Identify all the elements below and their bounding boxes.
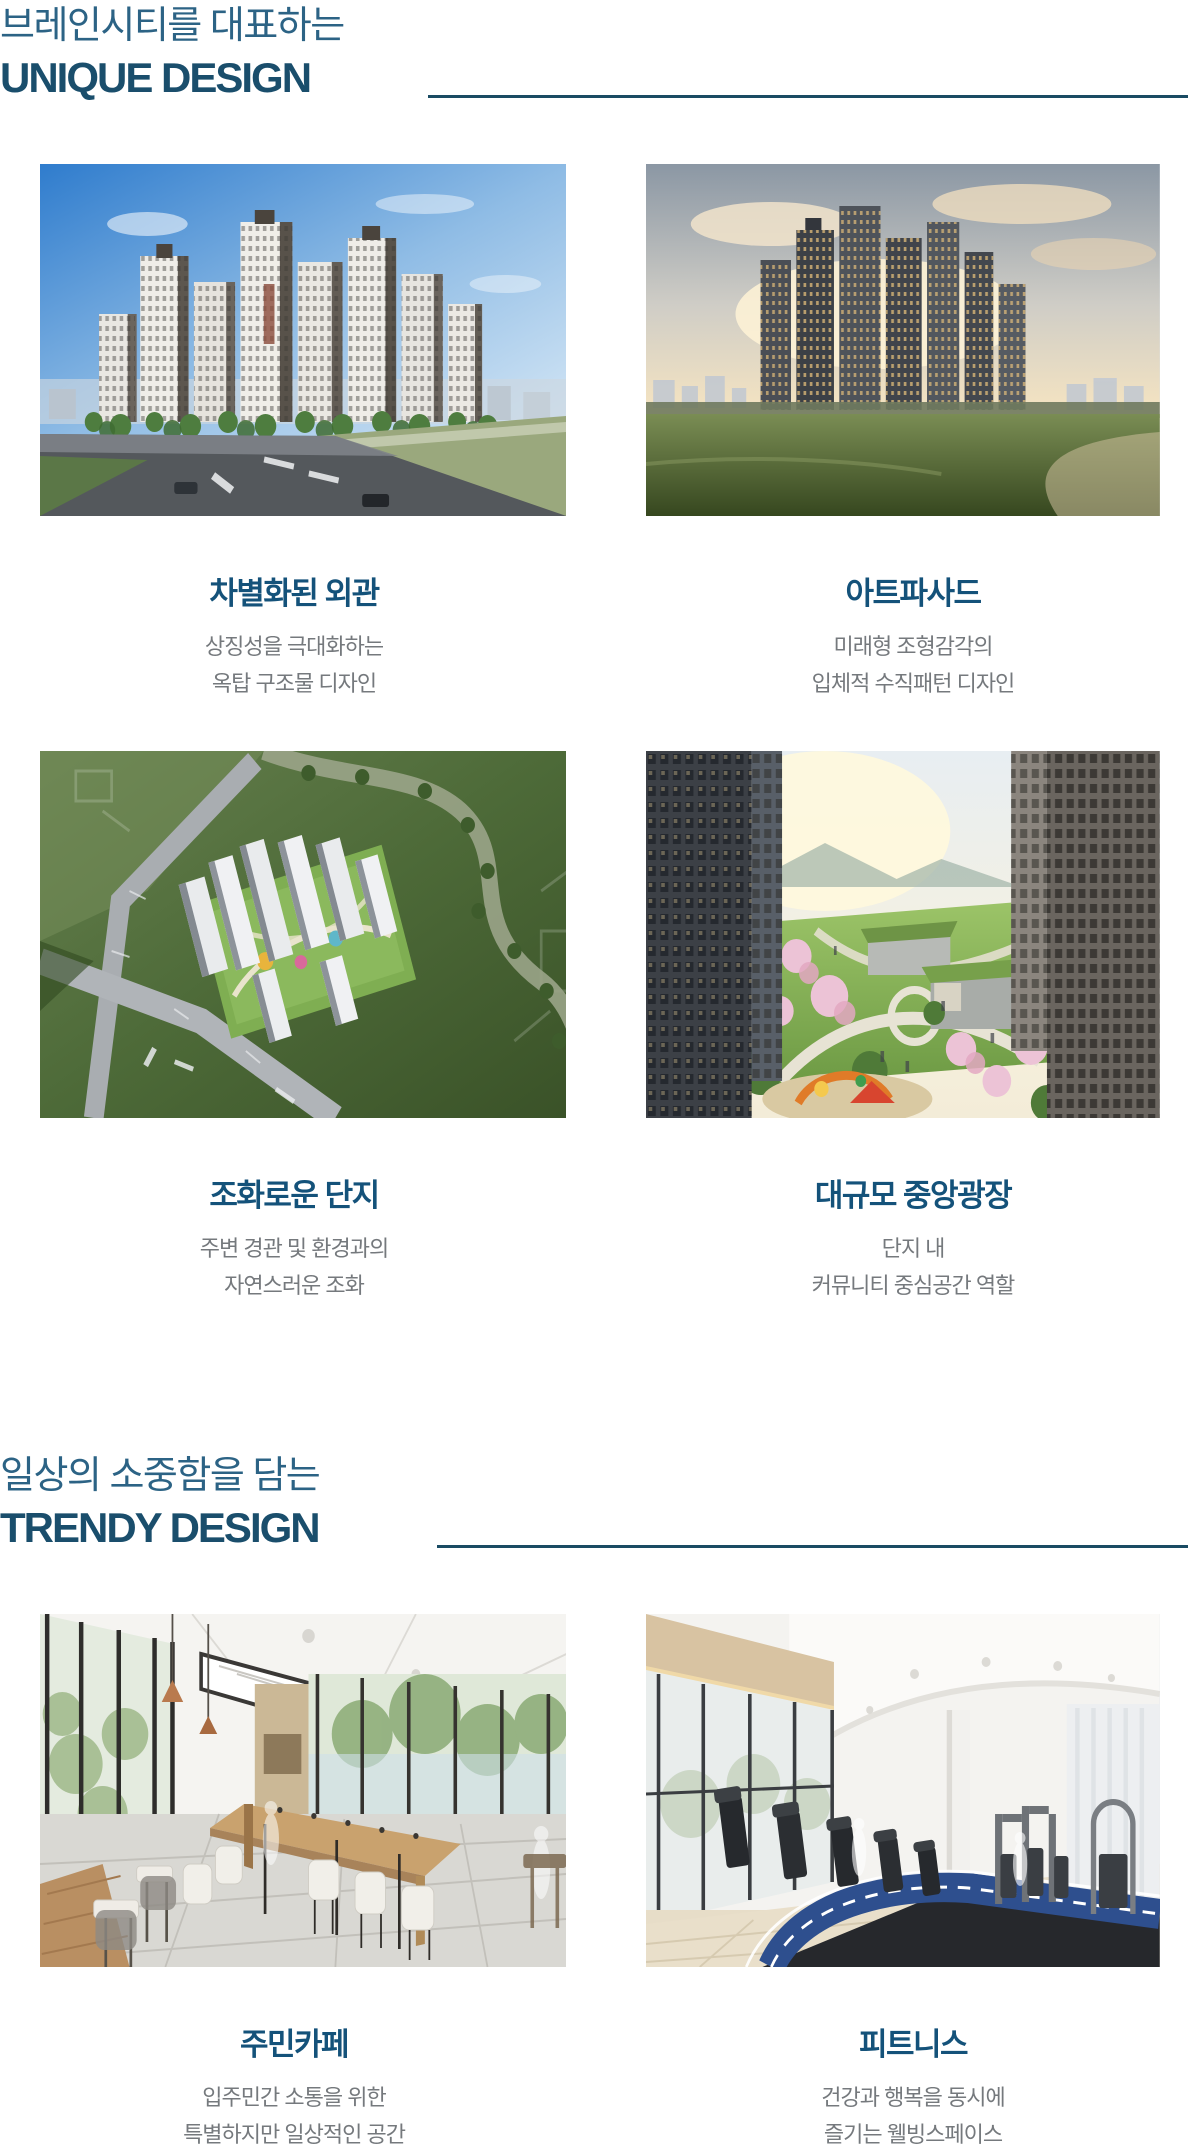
card-desc-line: 자연스러운 조화 bbox=[0, 1267, 588, 1304]
card-desc-line: 미래형 조형감각의 bbox=[626, 628, 1200, 665]
photo-fitness-center bbox=[646, 1614, 1160, 1967]
image-row-3 bbox=[0, 1598, 1200, 1983]
card-desc-line: 상징성을 극대화하는 bbox=[0, 628, 588, 665]
card-title: 피트니스 bbox=[626, 2027, 1200, 2063]
card-title: 주민카페 bbox=[0, 2027, 588, 2063]
card-description: 입주민간 소통을 위한 특별하지만 일상적인 공간 bbox=[0, 2079, 588, 2153]
card-desc-line: 주변 경관 및 환경과의 bbox=[0, 1230, 588, 1267]
card-description: 미래형 조형감각의 입체적 수직패턴 디자인 bbox=[626, 628, 1200, 702]
card-description: 건강과 행복을 동시에 즐기는 웰빙스페이스 bbox=[626, 2079, 1200, 2153]
section-title: TRENDY DESIGN bbox=[0, 1507, 319, 1549]
card-description: 상징성을 극대화하는 옥탑 구조물 디자인 bbox=[0, 628, 588, 702]
card-caption: 차별화된 외관 상징성을 극대화하는 옥탑 구조물 디자인 bbox=[0, 532, 588, 702]
section-divider-rule bbox=[437, 1545, 1188, 1548]
card-desc-line: 특별하지만 일상적인 공간 bbox=[0, 2116, 588, 2153]
section-header: 일상의 소중함을 담는 TRENDY DESIGN bbox=[0, 1452, 1200, 1549]
residents-cafe-illustration bbox=[40, 1614, 566, 1967]
photo-aerial-complex bbox=[40, 751, 566, 1118]
section-title-row: TRENDY DESIGN bbox=[0, 1502, 1200, 1549]
card-caption: 피트니스 건강과 행복을 동시에 즐기는 웰빙스페이스 bbox=[626, 1983, 1200, 2153]
photo-daytime-towers bbox=[40, 164, 566, 516]
photo-residents-cafe bbox=[40, 1614, 566, 1967]
card-title: 대규모 중앙광장 bbox=[626, 1178, 1200, 1214]
card-caption: 조화로운 단지 주변 경관 및 환경과의 자연스러운 조화 bbox=[0, 1134, 588, 1304]
photo-central-plaza bbox=[646, 751, 1160, 1118]
card-desc-line: 단지 내 bbox=[626, 1230, 1200, 1267]
card-title: 차별화된 외관 bbox=[0, 576, 588, 612]
section-unique-design: 브레인시티를 대표하는 UNIQUE DESIGN bbox=[0, 0, 1200, 1304]
card-desc-line: 입체적 수직패턴 디자인 bbox=[626, 665, 1200, 702]
card-caption: 대규모 중앙광장 단지 내 커뮤니티 중심공간 역할 bbox=[626, 1134, 1200, 1304]
card-description: 주변 경관 및 환경과의 자연스러운 조화 bbox=[0, 1230, 588, 1304]
sunset-towers-illustration bbox=[646, 164, 1160, 516]
section-kicker: 일상의 소중함을 담는 bbox=[0, 1452, 1200, 1500]
promo-page: 브레인시티를 대표하는 UNIQUE DESIGN bbox=[0, 0, 1200, 2086]
image-row-1 bbox=[0, 148, 1200, 532]
caption-row-3: 주민카페 입주민간 소통을 위한 특별하지만 일상적인 공간 피트니스 건강과 … bbox=[0, 1983, 1200, 2153]
section-title: UNIQUE DESIGN bbox=[0, 57, 310, 99]
central-plaza-illustration bbox=[646, 751, 1160, 1118]
card-description: 단지 내 커뮤니티 중심공간 역할 bbox=[626, 1230, 1200, 1304]
daytime-towers-illustration bbox=[40, 164, 566, 516]
image-row-2 bbox=[0, 735, 1200, 1134]
card-caption: 아트파사드 미래형 조형감각의 입체적 수직패턴 디자인 bbox=[626, 532, 1200, 702]
card-desc-line: 즐기는 웰빙스페이스 bbox=[626, 2116, 1200, 2153]
caption-row-2: 조화로운 단지 주변 경관 및 환경과의 자연스러운 조화 대규모 중앙광장 단… bbox=[0, 1134, 1200, 1304]
card-desc-line: 입주민간 소통을 위한 bbox=[0, 2079, 588, 2116]
card-title: 아트파사드 bbox=[626, 576, 1200, 612]
photo-sunset-towers bbox=[646, 164, 1160, 516]
section-trendy-design: 일상의 소중함을 담는 TRENDY DESIGN bbox=[0, 1452, 1200, 2153]
fitness-center-illustration bbox=[646, 1614, 1160, 1967]
section-title-row: UNIQUE DESIGN bbox=[0, 52, 1200, 99]
aerial-complex-illustration bbox=[40, 751, 566, 1118]
card-desc-line: 커뮤니티 중심공간 역할 bbox=[626, 1267, 1200, 1304]
caption-row-1: 차별화된 외관 상징성을 극대화하는 옥탑 구조물 디자인 아트파사드 미래형 … bbox=[0, 532, 1200, 702]
section-divider-rule bbox=[428, 95, 1188, 98]
section-header: 브레인시티를 대표하는 UNIQUE DESIGN bbox=[0, 2, 1200, 99]
card-title: 조화로운 단지 bbox=[0, 1178, 588, 1214]
card-desc-line: 건강과 행복을 동시에 bbox=[626, 2079, 1200, 2116]
section-kicker: 브레인시티를 대표하는 bbox=[0, 2, 1200, 50]
card-desc-line: 옥탑 구조물 디자인 bbox=[0, 665, 588, 702]
card-caption: 주민카페 입주민간 소통을 위한 특별하지만 일상적인 공간 bbox=[0, 1983, 588, 2153]
